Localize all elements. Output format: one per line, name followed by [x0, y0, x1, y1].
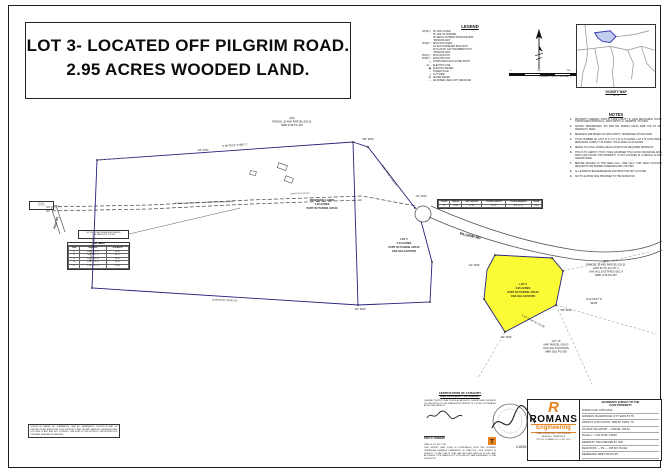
note-text: NO TITLE WORK WAS PROVIDED TO THE SURVEY…	[575, 176, 662, 179]
table-cell: N 47°12' E	[506, 204, 531, 208]
certification-body1: I HEREBY CERTIFY THAT THIS IS A CATEGORY…	[424, 400, 496, 408]
certification-heading2: AND ACCURACY OF SURVEY	[424, 395, 496, 398]
easement-callout-line2: PER MRB 1811 PG 500	[80, 234, 127, 237]
table-cell: 72°00'	[531, 204, 541, 208]
title-block: R ROMANS Engineering LAND SURVEYING • CI…	[527, 399, 662, 461]
vicinity-map-roads	[577, 25, 655, 87]
note-item: 9.NO TITLE WORK WAS PROVIDED TO THE SURV…	[570, 176, 662, 179]
notes-heading: NOTES	[570, 112, 662, 117]
note-text: BEFORE DIGGING IN THIS AREA CALL "ONE CA…	[575, 163, 662, 169]
note-item: 4.TOTAL NUMBER OF LOTS IS 3: LOT 2 IS ±2…	[570, 139, 662, 145]
titleblock-form: BOUNDARY SURVEY OF THE CAVE PROPERTY SUR…	[580, 400, 661, 460]
vicinity-subject-parcel	[595, 31, 616, 43]
table-cell: C1	[439, 204, 450, 208]
titleblock-field-row: REFERENCE: MRB 1746 PG 387	[582, 452, 659, 458]
note-text: ALL EVIDENT FENCES/REMAINS AND IRON PINS…	[575, 171, 662, 174]
certification-body2: THIS SURVEY WAS DONE IN COMPLIANCE WITH …	[424, 447, 496, 460]
notes-list: 1.PROPERTY OWNERS: JOHN W. CAVE & BETTY …	[570, 119, 662, 179]
legend-symbol: - - -	[419, 80, 433, 83]
table-cell: 50.00'	[450, 204, 462, 208]
vicinity-map	[576, 24, 656, 88]
easement-callout-box: 50' EXISTING INGRESS/EGRESS PER MRB 1811…	[78, 230, 129, 239]
note-item: 2.SURVEY REFERENCES: TAX MAP 091, PARCEL…	[570, 126, 662, 132]
note-item: 1.PROPERTY OWNERS: JOHN W. CAVE & BETTY …	[570, 119, 662, 125]
disclaimer-box: SURVEYOR MAKES NO GUARANTEE THAT ALL EAS…	[28, 424, 120, 438]
note-text: REFER TO LOCAL ZONING REGULATIONS FOR RE…	[575, 147, 662, 150]
title-box: LOT 3- LOCATED OFF PILGRIM ROAD. 2.95 AC…	[25, 22, 351, 99]
line-table-grid: LINEBEARINGDISTANCEL1N 86°14'32" E50.00'…	[68, 246, 129, 269]
certification-block: CERTIFICATION OF CATEGORY AND ACCURACY O…	[424, 392, 496, 460]
titleblock-rows: SURVEY FOR: JOHN CAVEADDRESS: PILGRIM RO…	[582, 408, 659, 459]
vicinity-caption-scale: N.T.S.	[576, 94, 656, 97]
surveyor-name: TROY E. ROMANS	[424, 436, 445, 440]
note-item: 6.THIS IS TO CERTIFY THAT I HAVE EXAMINE…	[570, 152, 662, 161]
legend-heading: LEGEND	[419, 24, 521, 29]
note-text: PROPERTY OWNERS: JOHN W. CAVE & BETTY B.…	[575, 119, 662, 125]
surveyor-registration: TENN. R.L.S. NO. 2119	[424, 444, 496, 446]
firm-name: ROMANS	[528, 415, 579, 424]
curve-table-grid: CURVERADIUSARC LENGTHCHORD LENGTHCHORD B…	[438, 200, 542, 208]
note-text: SURVEY REFERENCES: TAX MAP 091, PARCEL 0…	[575, 126, 662, 132]
page-title-line2: 2.95 ACRES WOODED LAND.	[26, 58, 350, 82]
note-text: TOTAL NUMBER OF LOTS IS 3: LOT 2 IS ±2.1…	[575, 139, 662, 145]
table-row: C150.00'62.83'58.12'N 47°12' E72°00'	[439, 204, 542, 208]
table-cell: 62.83'	[462, 204, 482, 208]
note-item: 3.BEARINGS ARE BASED ON GRID NORTH, TENN…	[570, 134, 662, 137]
legend-text: ADJOINER LINES NOT SURVEYED	[433, 80, 521, 83]
firm-address-lines: LAND SURVEYING • CIVIL DESIGNMEMPHIS, TE…	[528, 433, 579, 441]
survey-sheet: LOT 3- LOCATED OFF PILGRIM ROAD. 2.95 AC…	[0, 0, 669, 473]
table-cell: 51.08'	[106, 264, 128, 268]
curve-table: CURVERADIUSARC LENGTHCHORD LENGTHCHORD B…	[437, 199, 543, 209]
legend-item: - - -ADJOINER LINES NOT SURVEYED	[419, 80, 521, 83]
firm-logo-icon: R	[528, 401, 579, 415]
table-row: L5S 86°47'22" E51.08'	[69, 264, 129, 268]
firm-subtitle: Engineering	[531, 424, 576, 433]
legend-rows: IPF(S) =PK NAIL FOUNDPK NAIL W/ WASHERW/…	[419, 31, 521, 84]
firm-panel: R ROMANS Engineering LAND SURVEYING • CI…	[528, 400, 580, 460]
note-item: 8.ALL EVIDENT FENCES/REMAINS AND IRON PI…	[570, 171, 662, 174]
note-item: 7.BEFORE DIGGING IN THIS AREA CALL "ONE …	[570, 163, 662, 169]
table-header-row: CURVERADIUSARC LENGTHCHORD LENGTHCHORD B…	[439, 201, 542, 205]
pob-line2: LOT 3	[31, 205, 52, 208]
surveyor-signature-icon	[424, 409, 464, 421]
notes-block: NOTES 1.PROPERTY OWNERS: JOHN W. CAVE & …	[570, 112, 662, 181]
scale-tick: 200	[567, 70, 571, 72]
line-table: LINE TABLE LINEBEARINGDISTANCEL1N 86°14'…	[67, 242, 130, 270]
pob-callout-box: P.O.B. LOT 3	[29, 201, 54, 210]
note-item: 5.REFER TO LOCAL ZONING REGULATIONS FOR …	[570, 147, 662, 150]
scale-tick: 100	[537, 70, 541, 72]
firm-address-line: TROY E. ROMANS, R.L.S. NO. 2119	[528, 439, 579, 442]
page-title-line1: LOT 3- LOCATED OFF PILGRIM ROAD.	[26, 34, 350, 58]
scale-tick: 0	[510, 70, 511, 72]
table-cell: S 86°47'22" E	[80, 264, 107, 268]
note-text: THIS IS TO CERTIFY THAT I HAVE EXAMINED …	[575, 152, 662, 161]
vicinity-caption: VICINITY MAP N.T.S.	[576, 90, 656, 97]
table-cell: 58.12'	[482, 204, 506, 208]
note-text: BEARINGS ARE BASED ON GRID NORTH, TENNES…	[575, 134, 662, 137]
north-arrow-icon	[529, 27, 549, 71]
legend: LEGEND IPF(S) =PK NAIL FOUNDPK NAIL W/ W…	[419, 24, 521, 83]
table-cell: L5	[69, 264, 80, 268]
